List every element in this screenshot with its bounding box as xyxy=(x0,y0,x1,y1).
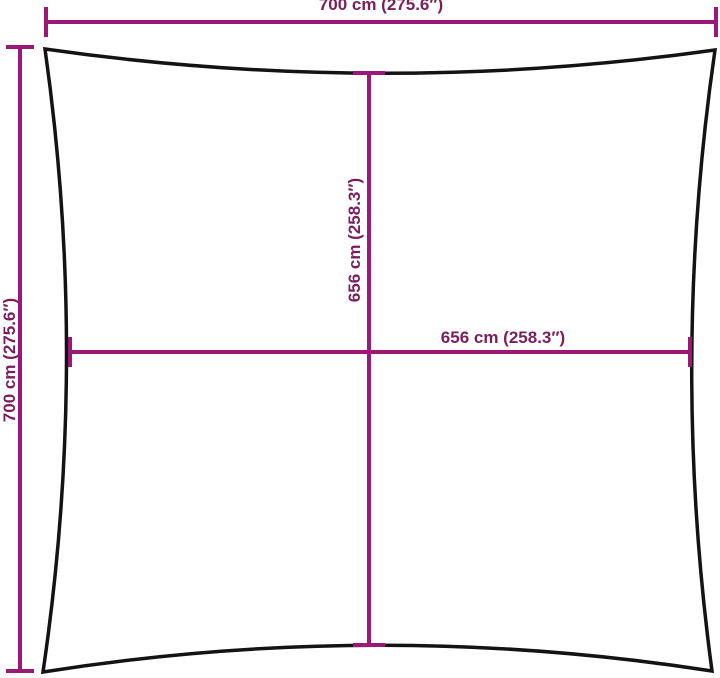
dimension-diagram-canvas: 700 cm (275.6″) 700 cm (275.6″) 656 cm (… xyxy=(0,0,720,678)
dimension-label-top: 700 cm (275.6″) xyxy=(45,0,717,15)
dimension-label-vertical-center: 656 cm (258.3″) xyxy=(345,178,365,302)
dimension-tick-hcenter-left xyxy=(68,337,72,367)
dimension-line-vertical-center xyxy=(367,71,371,647)
sail-outline xyxy=(43,49,715,672)
dimension-label-horizontal-center: 656 cm (258.3″) xyxy=(441,328,565,348)
dimension-line-top xyxy=(45,20,717,24)
sail-outline-svg xyxy=(0,0,720,678)
dimension-line-horizontal-center xyxy=(68,350,692,354)
dimension-tick-left-bottom xyxy=(6,669,34,673)
dimension-tick-hcenter-right xyxy=(688,337,692,367)
dimension-tick-vcenter-bottom xyxy=(353,643,385,647)
dimension-label-left: 700 cm (275.6″) xyxy=(0,298,20,422)
dimension-tick-left-top xyxy=(6,45,34,49)
dimension-tick-vcenter-top xyxy=(353,71,385,75)
